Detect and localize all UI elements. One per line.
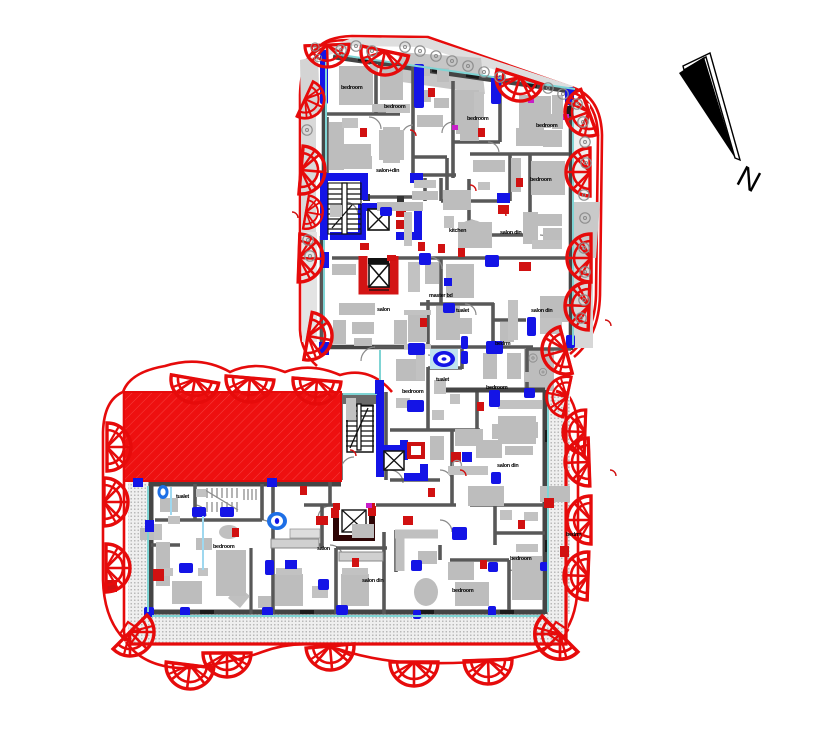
svg-text:master bd: master bd <box>429 293 453 299</box>
svg-text:bedroom: bedroom <box>510 556 532 562</box>
svg-text:salon din: salon din <box>362 578 384 584</box>
svg-text:tualet: tualet <box>436 377 449 383</box>
svg-text:salon din: salon din <box>531 308 553 314</box>
svg-text:bedroom: bedroom <box>536 123 558 129</box>
svg-text:bedroom: bedroom <box>530 177 552 183</box>
svg-text:bedroom: bedroom <box>213 544 235 550</box>
svg-text:bedroom: bedroom <box>341 85 363 91</box>
svg-text:salon: salon <box>377 307 391 313</box>
svg-text:bedrm: bedrm <box>566 532 582 538</box>
svg-text:bedrm: bedrm <box>495 341 511 347</box>
svg-text:tualet: tualet <box>456 308 469 314</box>
svg-text:bedroom: bedroom <box>452 588 474 594</box>
svg-text:salon+din: salon+din <box>376 168 400 174</box>
svg-text:bedroom: bedroom <box>402 389 424 395</box>
svg-text:bedroom: bedroom <box>486 385 508 391</box>
svg-text:kitchen: kitchen <box>449 228 467 234</box>
svg-text:tualet: tualet <box>176 494 189 500</box>
svg-text:salon din: salon din <box>500 230 522 236</box>
svg-text:salon din: salon din <box>497 463 519 469</box>
svg-text:bedroom: bedroom <box>467 116 489 122</box>
svg-text:bedroom: bedroom <box>384 104 406 110</box>
svg-text:salon: salon <box>317 546 331 552</box>
